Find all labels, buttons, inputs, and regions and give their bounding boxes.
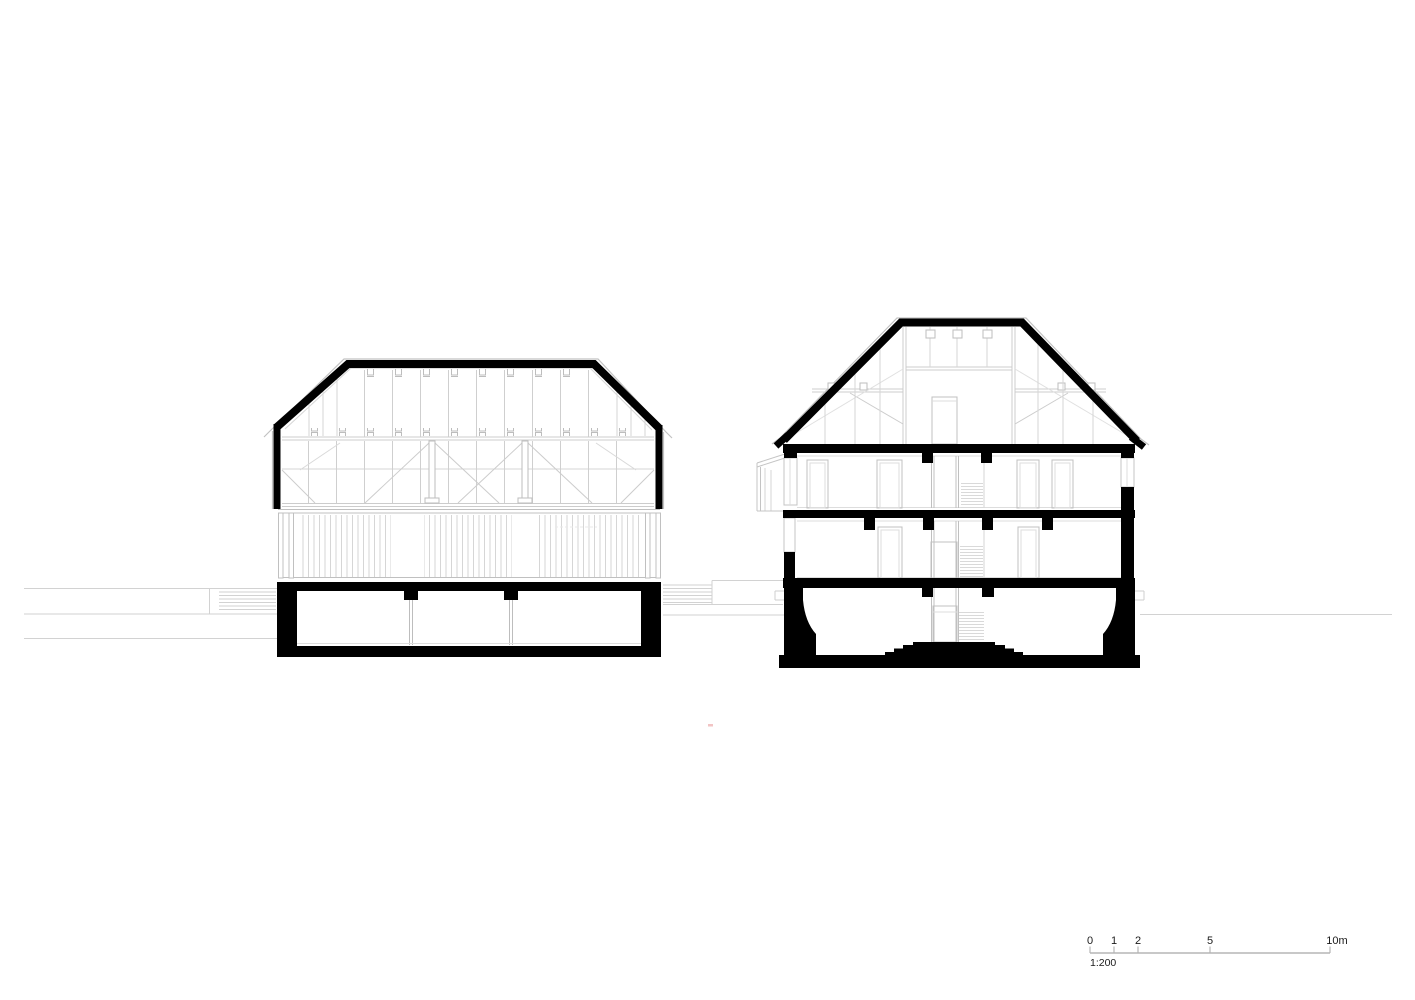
slat-group-2 <box>424 515 512 577</box>
house-section <box>757 318 1149 668</box>
house-upper-storey <box>784 456 1134 508</box>
scale-ratio-label: 1:200 <box>1090 957 1116 969</box>
barn-cladding-band <box>278 510 661 579</box>
barn-roof-framing <box>282 368 654 507</box>
stairs-upper <box>961 483 983 508</box>
barn-section <box>264 359 672 657</box>
slat-group-1 <box>298 515 391 577</box>
drawing-sheet: 0 1 2 5 10m 1:200 <box>0 0 1415 1000</box>
scale-bar-ticks <box>1090 947 1330 954</box>
exterior-steps-middle <box>663 583 712 603</box>
scale-label-1: 1 <box>1111 935 1117 947</box>
middle-door-1 <box>878 527 902 578</box>
house-middle-storey <box>784 518 1122 582</box>
middle-center-door <box>931 542 957 582</box>
exterior-steps-left <box>219 590 276 610</box>
slat-group-3 <box>537 515 643 577</box>
scale-label-10m: 10m <box>1326 935 1347 947</box>
terrain-lines <box>24 581 1392 639</box>
scale-label-5: 5 <box>1207 935 1213 947</box>
scale-label-2: 2 <box>1135 935 1141 947</box>
scale-bar: 0 1 2 5 10m 1:200 <box>1087 935 1348 969</box>
basement-door <box>933 606 957 642</box>
upper-door-2 <box>877 460 902 508</box>
house-annex <box>757 453 788 511</box>
scale-label-0: 0 <box>1087 935 1093 947</box>
barn-basement <box>277 582 661 657</box>
section-drawing-svg: 0 1 2 5 10m 1:200 <box>0 0 1415 1000</box>
stairs-basement <box>959 612 984 640</box>
stairs-middle <box>960 544 983 577</box>
attic-door <box>932 397 957 444</box>
tiny-pink-mark <box>708 724 713 727</box>
